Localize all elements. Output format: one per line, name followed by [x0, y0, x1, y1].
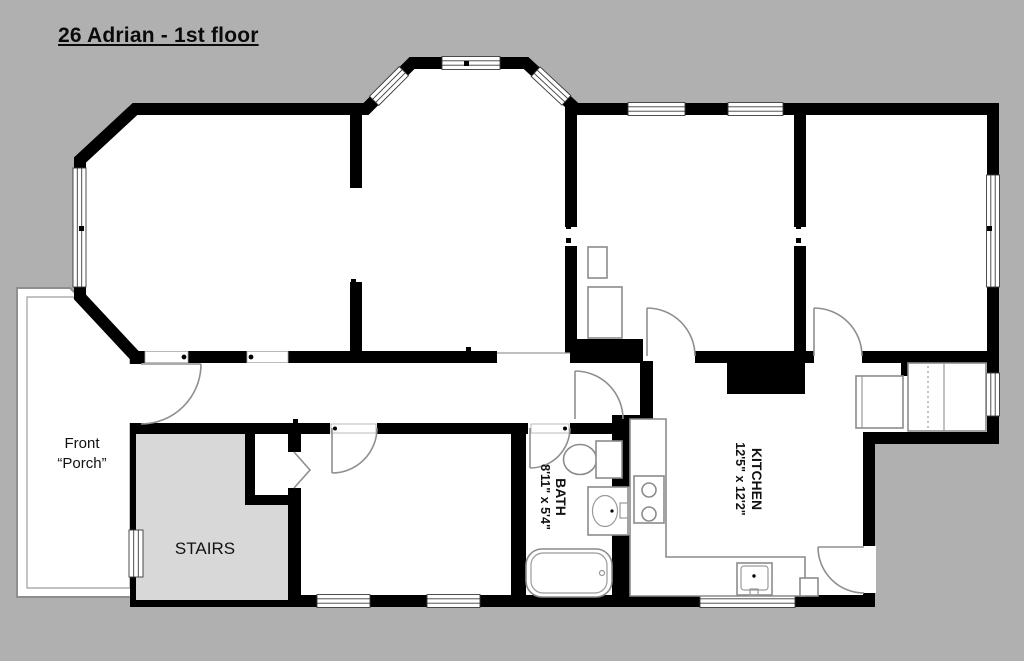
chimney	[727, 361, 805, 394]
side-door-opening	[862, 546, 876, 593]
toilet-bowl	[564, 445, 597, 475]
radiator	[588, 287, 622, 338]
window	[317, 595, 370, 608]
back-closet	[908, 363, 986, 431]
window	[129, 530, 143, 577]
window	[427, 595, 480, 608]
kitchen-dimensions: 12'5" x 12'2"	[733, 442, 747, 515]
floor-plan: Front “Porch” STAIRS BATH 8'11" x 5'4" K…	[0, 0, 1024, 661]
bath-label: BATH	[553, 478, 569, 516]
stairs-label: STAIRS	[175, 539, 235, 558]
refrigerator	[856, 376, 903, 428]
radiator	[588, 247, 607, 278]
burner	[642, 507, 656, 521]
window	[728, 103, 783, 116]
floor-plan-page: 26 Adrian - 1st floor	[0, 0, 1024, 661]
window	[987, 373, 1000, 416]
toilet-tank	[596, 441, 622, 478]
window	[442, 57, 500, 70]
front-door-opening	[129, 364, 143, 423]
bath-dimensions: 8'11" x 5'4"	[538, 464, 552, 530]
burner	[642, 483, 656, 497]
step-box	[800, 578, 818, 596]
porch-label-line2: “Porch”	[57, 455, 106, 472]
porch-label-line1: Front	[64, 435, 100, 452]
window	[628, 103, 685, 116]
sink-vanity	[588, 487, 628, 535]
kitchen-label: KITCHEN	[749, 448, 765, 510]
